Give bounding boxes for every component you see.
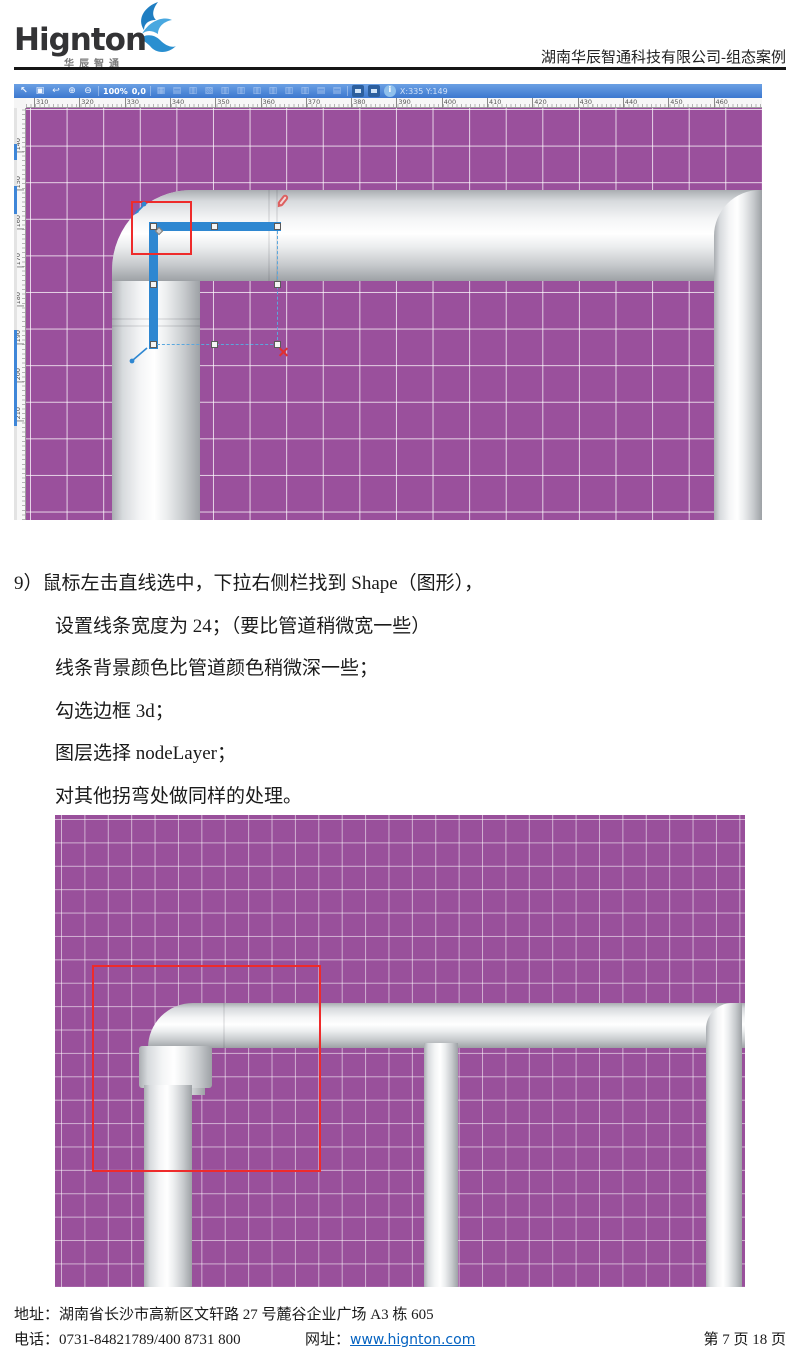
instruction-line: 图层选择 nodeLayer；: [55, 738, 236, 765]
footer-phone: 电话：0731-84821789/400 8731 800: [14, 1328, 241, 1349]
delete-x-marker: [278, 346, 289, 357]
design-canvas[interactable]: [26, 108, 762, 520]
selection-handle[interactable]: [211, 341, 218, 348]
endpoint-arrow-icon: [128, 346, 150, 366]
ruler-label: 370: [306, 98, 320, 108]
ruler-label: 340: [170, 98, 184, 108]
align-left-icon[interactable]: [219, 85, 231, 97]
footer-website: 网址：www.hignton.com: [305, 1328, 475, 1349]
ruler-label: 360: [261, 98, 275, 108]
ruler-label: 460: [714, 98, 728, 108]
ruler-label: 390: [396, 98, 410, 108]
cursor-icon[interactable]: [18, 85, 30, 97]
anchor-point-icon: [132, 200, 150, 218]
horizontal-ruler: 3103203303403503603703803904004104204304…: [26, 98, 762, 108]
instruction-line: 勾选边框 3d；: [55, 696, 174, 723]
designer-screenshot-top: 100% 0,0 X:335 Y:149 3103203303403503603…: [14, 84, 762, 520]
toolbar-separator: [150, 86, 151, 96]
ruler-label: 310: [34, 98, 48, 108]
zoom-level-label: 100%: [103, 87, 128, 96]
pipe-vertical-right[interactable]: [706, 1003, 742, 1287]
toolbar-separator: [347, 86, 348, 96]
ruler-label: 320: [79, 98, 93, 108]
info-icon[interactable]: [384, 85, 396, 97]
footer-website-link[interactable]: www.hignton.com: [350, 1332, 475, 1348]
doc-header-title: 湖南华辰智通科技有限公司-组态案例: [541, 46, 786, 67]
align-right-icon[interactable]: [251, 85, 263, 97]
save-icon[interactable]: [34, 85, 46, 97]
designer-screenshot-bottom[interactable]: [55, 815, 745, 1287]
company-logo: Hignton 华辰智通: [14, 2, 194, 66]
designer-toolbar: 100% 0,0 X:335 Y:149: [14, 84, 762, 98]
zoom-out-icon[interactable]: [82, 85, 94, 97]
toolbar-group-right: [352, 85, 396, 97]
selection-dashed-edge: [277, 231, 278, 345]
logo-wordmark: Hignton: [14, 22, 146, 58]
highlight-rectangle: [92, 965, 321, 1172]
selection-handle[interactable]: [211, 223, 218, 230]
toolbar-group-left: [18, 85, 94, 97]
instruction-line: 设置线条宽度为 24；（要比管道稍微宽一些）: [55, 611, 430, 638]
footer-address: 地址：湖南省长沙市高新区文轩路 27 号麓谷企业广场 A3 栋 605: [14, 1303, 434, 1324]
undo-icon[interactable]: [50, 85, 62, 97]
pipe-seam: [268, 190, 270, 281]
window-left-edge: [14, 108, 17, 520]
selection-handle[interactable]: [274, 223, 281, 230]
ruler-label: 400: [442, 98, 456, 108]
folder-open-icon[interactable]: [352, 85, 364, 97]
copy-icon[interactable]: [171, 85, 183, 97]
align-top-icon[interactable]: [267, 85, 279, 97]
ruler-label: 350: [215, 98, 229, 108]
cut-icon[interactable]: [203, 85, 215, 97]
paste-icon[interactable]: [187, 85, 199, 97]
align-center-icon[interactable]: [235, 85, 247, 97]
ruler-selection-mark: [14, 144, 17, 160]
footer-website-label: 网址：: [305, 1332, 350, 1348]
grid-icon[interactable]: [155, 85, 167, 97]
footer-page-number: 第 7 页 18 页: [703, 1328, 786, 1349]
instruction-line: 对其他拐弯处做同样的处理。: [55, 781, 302, 808]
ruler-label: 440: [623, 98, 637, 108]
ruler-label: 430: [578, 98, 592, 108]
ruler-label: 330: [125, 98, 139, 108]
selection-handle[interactable]: [150, 281, 157, 288]
same-width-icon[interactable]: [315, 85, 327, 97]
ruler-label: 450: [668, 98, 682, 108]
ruler-selection-mark: [14, 330, 17, 426]
zoom-in-icon[interactable]: [66, 85, 78, 97]
align-middle-icon[interactable]: [283, 85, 295, 97]
ruler-selection-mark: [14, 186, 17, 214]
instruction-line: 线条背景颜色比管道颜色稍微深一些；: [55, 653, 378, 680]
selection-handle[interactable]: [150, 341, 157, 348]
folder-new-icon[interactable]: [368, 85, 380, 97]
selection-handle[interactable]: [274, 281, 281, 288]
header-rule: [14, 67, 786, 70]
pipe-horizontal[interactable]: [112, 190, 762, 281]
cursor-coordinates-readout: X:335 Y:149: [400, 87, 448, 96]
align-bottom-icon[interactable]: [299, 85, 311, 97]
ruler-label: 420: [532, 98, 546, 108]
pipe-vertical-middle[interactable]: [424, 1043, 458, 1287]
origin-label: 0,0: [132, 87, 146, 96]
same-height-icon[interactable]: [331, 85, 343, 97]
ruler-label: 410: [487, 98, 501, 108]
pipe-vertical-right[interactable]: [714, 190, 762, 520]
ruler-label: 380: [351, 98, 365, 108]
instruction-paragraphs: 9）鼠标左击直线选中，下拉右侧栏找到 Shape（图形），设置线条宽度为 24；…: [14, 566, 784, 810]
toolbar-group-middle: [155, 85, 343, 97]
instruction-line: 9）鼠标左击直线选中，下拉右侧栏找到 Shape（图形），: [14, 568, 483, 595]
toolbar-separator: [98, 86, 99, 96]
